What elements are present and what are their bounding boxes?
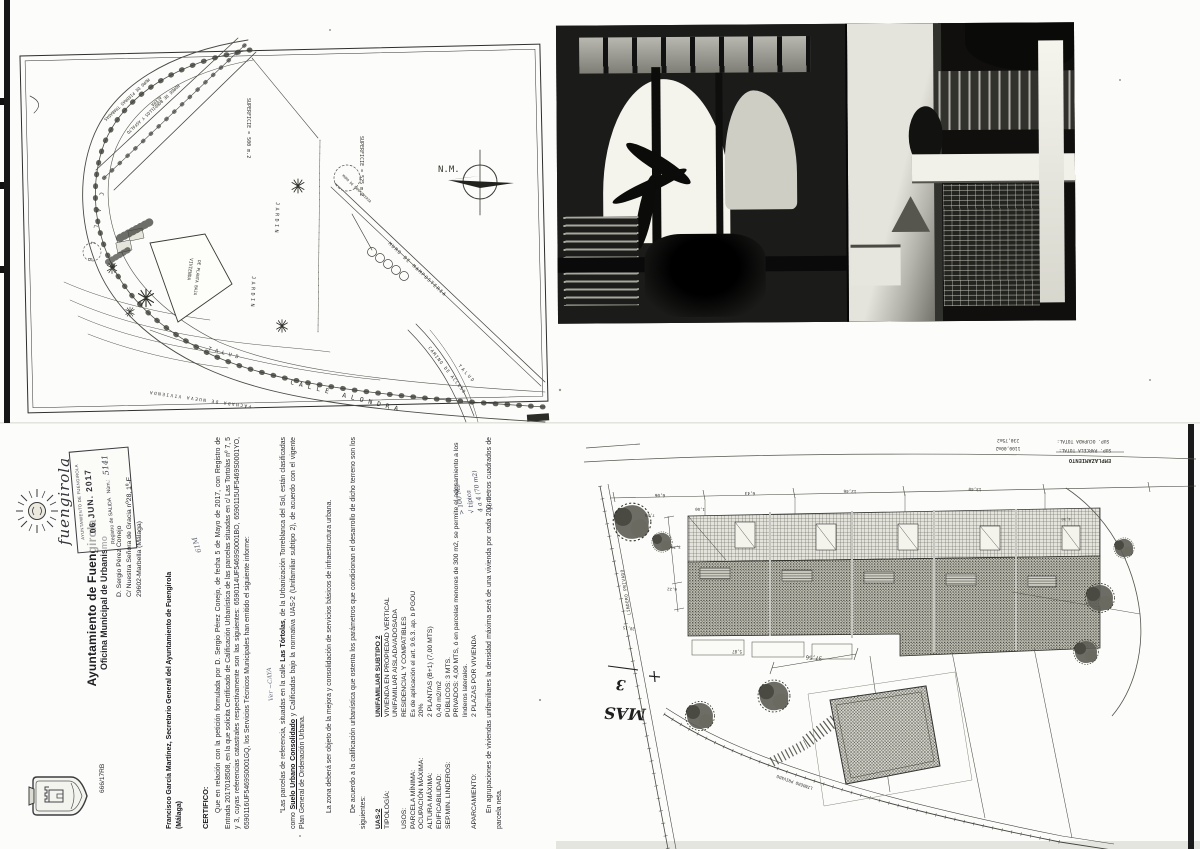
stamp-number-handwritten: 5141: [100, 455, 111, 476]
spec-label: SEP.MIN. LINDEROS:: [445, 717, 454, 829]
photo-street-scene: [847, 22, 1076, 322]
inline-scribble: Ver ~CAYA: [266, 667, 275, 701]
plan-dim-left-0: 7,20: [644, 513, 654, 518]
spec-row: SEP.MIN. LINDEROS:PÚBLICOS: 3 MTS.: [445, 429, 454, 829]
spec-label: USOS:: [401, 717, 410, 829]
municipal-crest-icon: [27, 773, 91, 819]
camino-acceso-lines: [150, 324, 478, 422]
scan-smudge: [527, 413, 549, 422]
spec-row: TIPOLOGÍA:VIVIENDA EN PROPIEDAD VERTICAL: [384, 429, 393, 829]
road-upper-diagonal: [96, 38, 256, 190]
spec-value: 2 PLANTAS (B+1) (7,00 MTS): [427, 429, 436, 717]
para1-text: Que en relación con la petición formulad…: [215, 437, 251, 829]
label-superficie-500: SUPERFICIE = 500 m.2: [245, 98, 251, 158]
spec-label: [453, 717, 470, 829]
plan-pool: [808, 672, 972, 806]
plan-houses: [688, 492, 1100, 659]
spec-value: UNIFAMILIAR AISLADA/ADOSADA: [392, 429, 401, 717]
handwritten-num: 3: [615, 676, 626, 693]
body-paragraph-1: Que en relación con la petición formulad…: [214, 437, 252, 829]
label-jardin-1: JARDIN: [273, 202, 280, 235]
plan-title: EMPLAZAMIENTO: [1069, 457, 1111, 463]
small-house: [851, 244, 901, 286]
reference-number: 666/17RB: [99, 764, 106, 793]
label-jardin-2: JARDIN: [249, 276, 256, 309]
spec-value: VIVIENDA EN PROPIEDAD VERTICAL: [384, 429, 393, 717]
road-junction-circles: [352, 214, 409, 281]
plan-lindero-2: LINDERO PRIVADO: [775, 774, 813, 791]
site-plan: EMPLAZAMIENTO SUP. PARCELA TOTAL: 1100,0…: [584, 424, 1196, 849]
spec-value: Es de aplicación el art. 9.6.3. ap. b PG…: [410, 429, 419, 717]
addressee-street: C/ Nuestra Señora de Gracia nº28, 1º-E: [125, 429, 135, 597]
scan-edge-right: [1188, 424, 1194, 849]
photo-terrace-scene: [556, 24, 849, 324]
spec-value: 0,40 m2/m2: [436, 429, 445, 717]
plan-dim-top-3: 13,40: [968, 486, 981, 492]
window-mullions: [579, 36, 810, 73]
plan-dim-left-1: 1,00: [694, 507, 704, 512]
sender-line: Francisco García Martínez, Secretario Ge…: [165, 437, 184, 829]
spec-label: APARCAMIENTO:: [471, 717, 480, 829]
scan-edge-left: [4, 0, 10, 423]
photocopied-photo-print: [556, 22, 1076, 324]
spec-row: UNIFAMILIAR AISLADA/ADOSADA: [392, 429, 401, 829]
spec-row: OCUPACIÓN MÁXIMA:20%: [418, 429, 427, 829]
house-footprint: [108, 222, 232, 322]
spec-label: [392, 717, 401, 829]
para2-a: “Las parcelas de referencia, situadas en…: [280, 662, 287, 813]
sender-line-1: Francisco García Martínez, Secretario Ge…: [166, 572, 173, 829]
final-paragraph: En agrupaciones de viviendas unifamiliar…: [485, 437, 504, 829]
handwritten-cross: [649, 671, 660, 682]
plan-dim-top-2: 12,46: [843, 488, 856, 494]
plan-dim-top-0: 6,06: [654, 492, 665, 498]
spec-header-row: UAS-2 UNIFAMILIAR SUBTIPO 2: [375, 429, 384, 829]
bright-opening: [724, 90, 797, 210]
certificate-letter-sheet: 666/17RB Ayuntamiento de Fuengirola Ofic…: [15, 425, 525, 849]
spec-value: RESIDENCIAL Y COMPATIBLES: [401, 429, 410, 717]
fuengirola-sun-logo-icon: fuengirola: [15, 439, 73, 563]
addressee-name: D. Sergio Pérez Conejo: [115, 429, 125, 597]
handwritten-mas: MAS: [604, 703, 647, 723]
plan-lindero-1: LINDERO PRIVADO: [619, 569, 632, 616]
addressee-city: 29602-Marbella (Málaga): [135, 429, 145, 597]
margin-scribble: 61M: [191, 536, 204, 554]
spec-label: ALTURA MÁXIMA:: [427, 717, 436, 829]
plan-dim-3756-label: 37,56: [806, 653, 823, 660]
label-muro-mamposteria-1: MURO DE MAMPOSTERIA: [387, 241, 448, 298]
certify-heading: CERTIFICO:: [201, 787, 210, 829]
label-north-mark: N.M.: [438, 165, 460, 175]
wall-mamposteria: [252, 58, 545, 386]
plan-dim-top-1: 6,43: [744, 490, 755, 496]
plan-lower-patios: [692, 640, 852, 659]
body-paragraph-4: De acuerdo a la calificación urbanística…: [349, 437, 368, 829]
label-muro-mamposteria-2: MURO DE MAMPOSTERIA: [341, 174, 372, 204]
spec-label: TIPOLOGÍA:: [384, 717, 393, 829]
furniture-mass: [644, 233, 766, 317]
plan-parcela-value: 1100,00m2: [995, 445, 1020, 451]
spec-label: EDIFICABILIDAD:: [436, 717, 445, 829]
white-column: [1038, 40, 1065, 302]
survey-map: N.M. SUPERFICIE = 500 m.2 SUPERFICIE = 5…: [0, 0, 549, 423]
spec-row: USOS:RESIDENCIAL Y COMPATIBLES: [401, 429, 410, 829]
final-para-text: En agrupaciones de viviendas unifamiliar…: [486, 437, 503, 829]
para2-b: Las Tórtolas: [280, 620, 287, 661]
brick-wall: [943, 183, 1039, 306]
spec-row: ALTURA MÁXIMA:2 PLANTAS (B+1) (7,00 MTS): [427, 429, 436, 829]
scanned-composite-page: { "colors": {"ink": "#2b2b31", "paper": …: [0, 0, 1200, 849]
plan-ocupada-value: 230,75m2: [997, 437, 1019, 443]
plan-ocupada-label: SUP. OCUPADA TOTAL:: [1057, 438, 1110, 444]
label-talud-1: TALUD: [207, 346, 242, 361]
body-paragraph-2: “Las parcelas de referencia, situadas en…: [279, 437, 308, 829]
para2-d: Suelo Urbano Consolidado: [290, 719, 297, 809]
para4-text: De acuerdo a la calificación urbanística…: [350, 437, 367, 829]
plan-dim-left-2: 3,76: [670, 545, 680, 550]
label-calle: C A L L E: [85, 192, 104, 267]
label-fachada: FACHADA DE NUEVA VIVIENDA: [148, 389, 251, 409]
plan-dim-misc-0: 20,15: [622, 625, 635, 632]
body-paragraph-3: La zona deberá ser objeto de la mejora y…: [325, 437, 335, 829]
plan-dim-misc-2: 4,50: [1061, 517, 1071, 522]
spec-code: UAS-2: [375, 717, 384, 829]
plan-dim-misc-1: 5,87: [732, 649, 742, 654]
addressee-block: D. Sergio Pérez Conejo C/ Nuestra Señora…: [115, 429, 146, 597]
spec-code-value: UNIFAMILIAR SUBTIPO 2: [375, 429, 384, 717]
stamp-num-label: Núm.:: [105, 479, 112, 493]
spec-row: EDIFICABILIDAD:0,40 m2/m2: [436, 429, 445, 829]
plan-dim-left-3: 6,22: [666, 587, 676, 592]
plan-parcela-label: SUP. PARCELA TOTAL:: [1059, 447, 1112, 453]
sender-line-2: (Málaga): [176, 801, 183, 829]
spec-value: 20%: [418, 429, 427, 717]
para3-text: La zona deberá ser objeto de la mejora y…: [326, 500, 333, 813]
compass-icon: [448, 150, 514, 215]
road-calle-alondra: [83, 40, 545, 422]
page-seam: [0, 422, 1200, 424]
label-calle-alondra: CALLE ALONDRA: [290, 378, 404, 414]
spec-label: OCUPACIÓN MÁXIMA:: [418, 717, 427, 829]
